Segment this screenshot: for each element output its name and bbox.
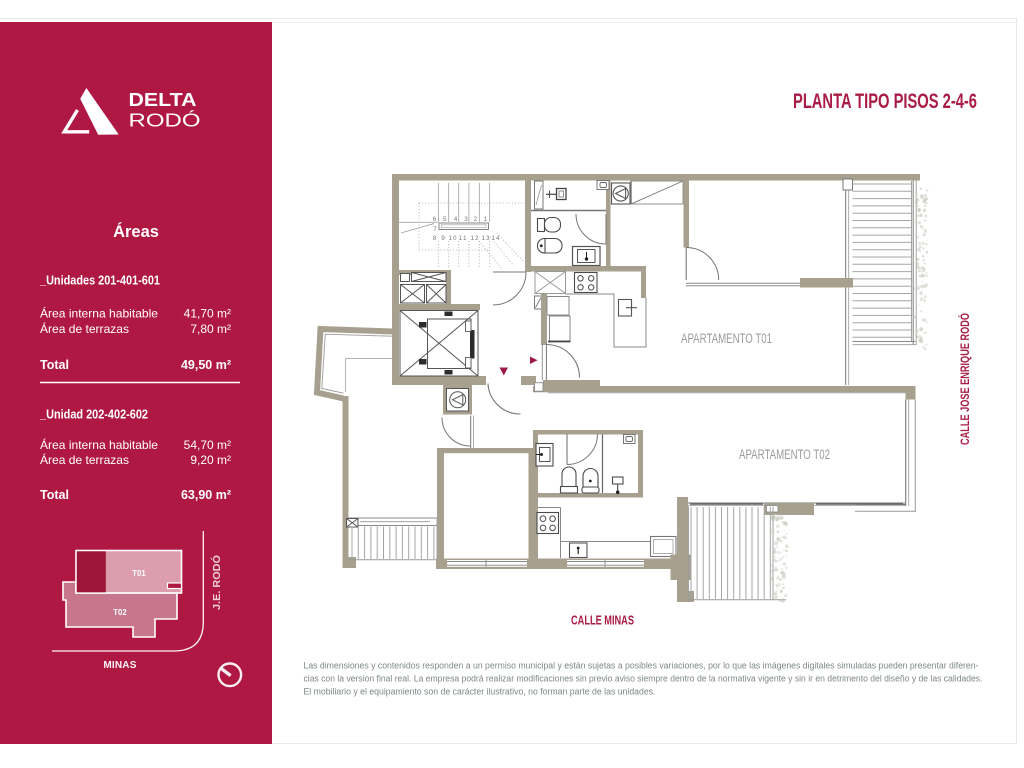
svg-text:CALLE MINAS: CALLE MINAS [571,614,634,628]
svg-text:APARTAMENTO T02: APARTAMENTO T02 [739,447,830,462]
svg-text:14: 14 [492,235,500,242]
svg-text:1: 1 [484,216,488,223]
svg-text:12: 12 [471,235,479,242]
svg-text:5: 5 [443,216,447,223]
svg-text:7: 7 [433,226,437,233]
svg-text:4: 4 [454,216,458,223]
svg-text:APARTAMENTO T01: APARTAMENTO T01 [681,331,772,346]
svg-text:9: 9 [441,235,445,242]
svg-text:8: 8 [433,235,437,242]
svg-text:3: 3 [464,216,468,223]
svg-text:10: 10 [449,235,457,242]
svg-text:PLANTA TIPO PISOS 2-4-6: PLANTA TIPO PISOS 2-4-6 [793,89,977,113]
svg-text:2: 2 [474,216,478,223]
svg-text:6: 6 [433,216,437,223]
svg-text:Las dimensiones y contenidos r: Las dimensiones y contenidos responden a… [304,661,979,671]
svg-text:cias con la version final real: cias con la version final real. La empre… [304,674,983,684]
svg-text:CALLE JOSE ENRIQUE RODÓ: CALLE JOSE ENRIQUE RODÓ [957,313,972,445]
svg-text:13: 13 [482,235,490,242]
svg-text:El mobiliario y el equipamient: El mobiliario y el equipamiento son de c… [304,686,656,696]
svg-text:11: 11 [459,235,467,242]
